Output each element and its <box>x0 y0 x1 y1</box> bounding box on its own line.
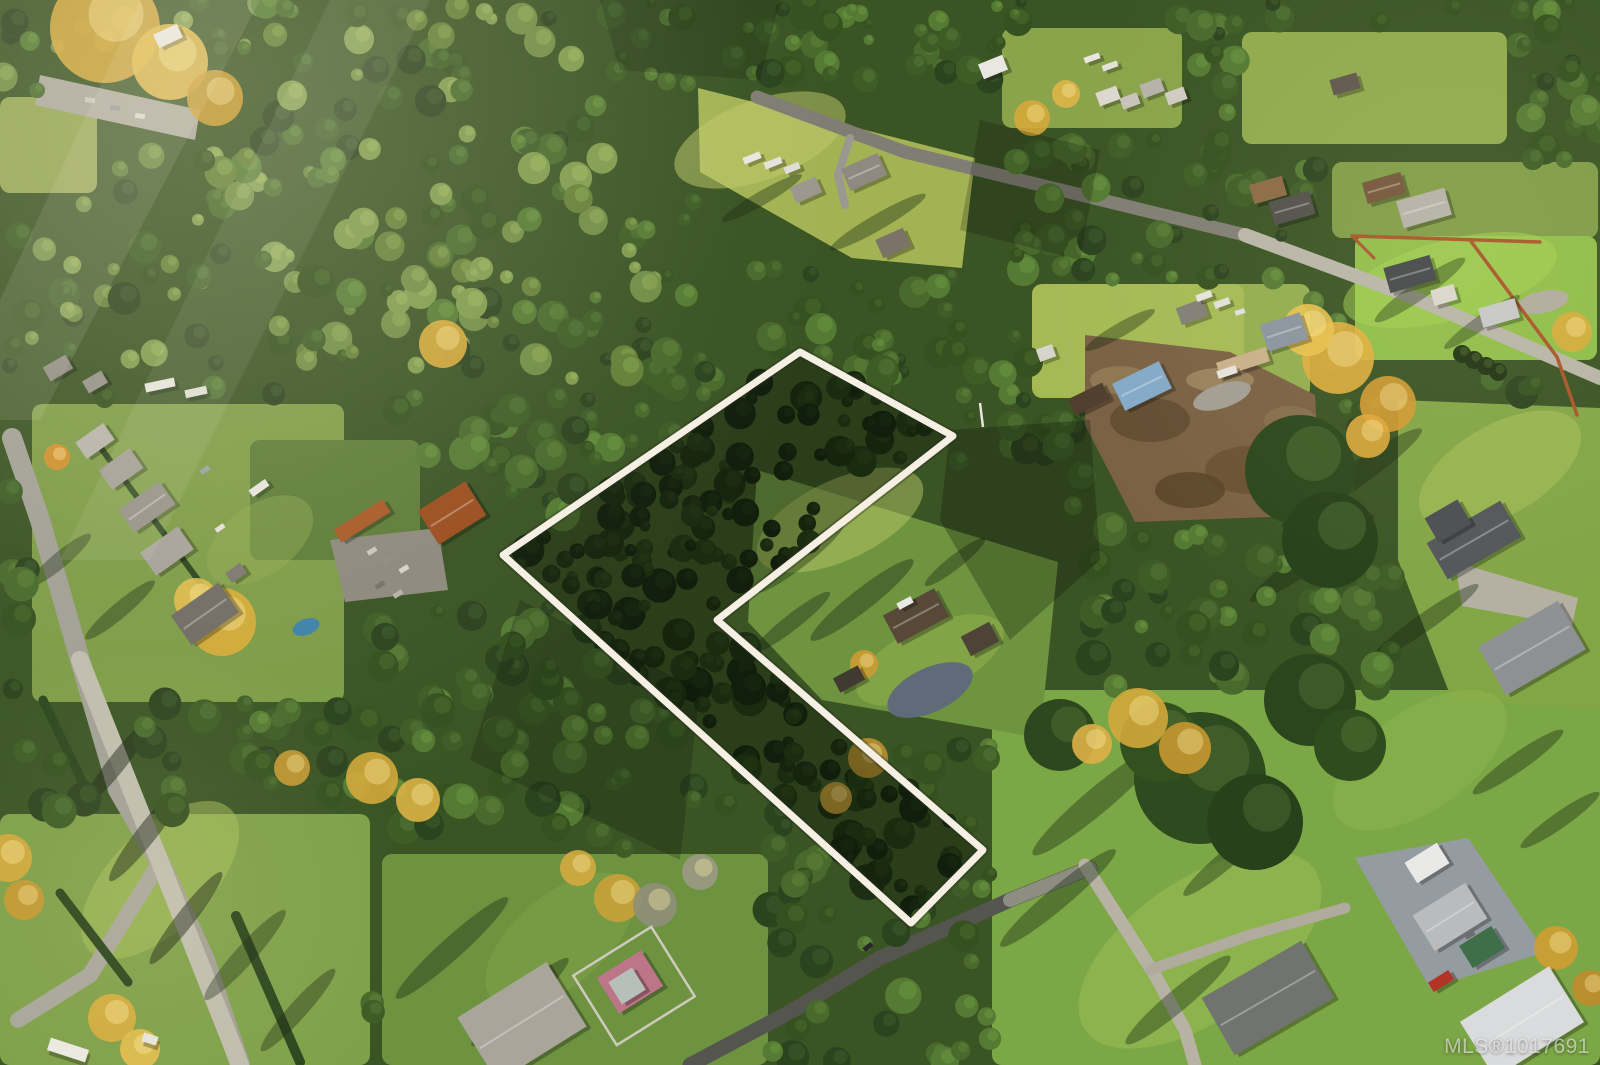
aerial-scene <box>0 0 1600 1065</box>
aerial-photo: MLS®1017691 <box>0 0 1600 1065</box>
mls-watermark: MLS®1017691 <box>1444 1035 1590 1059</box>
